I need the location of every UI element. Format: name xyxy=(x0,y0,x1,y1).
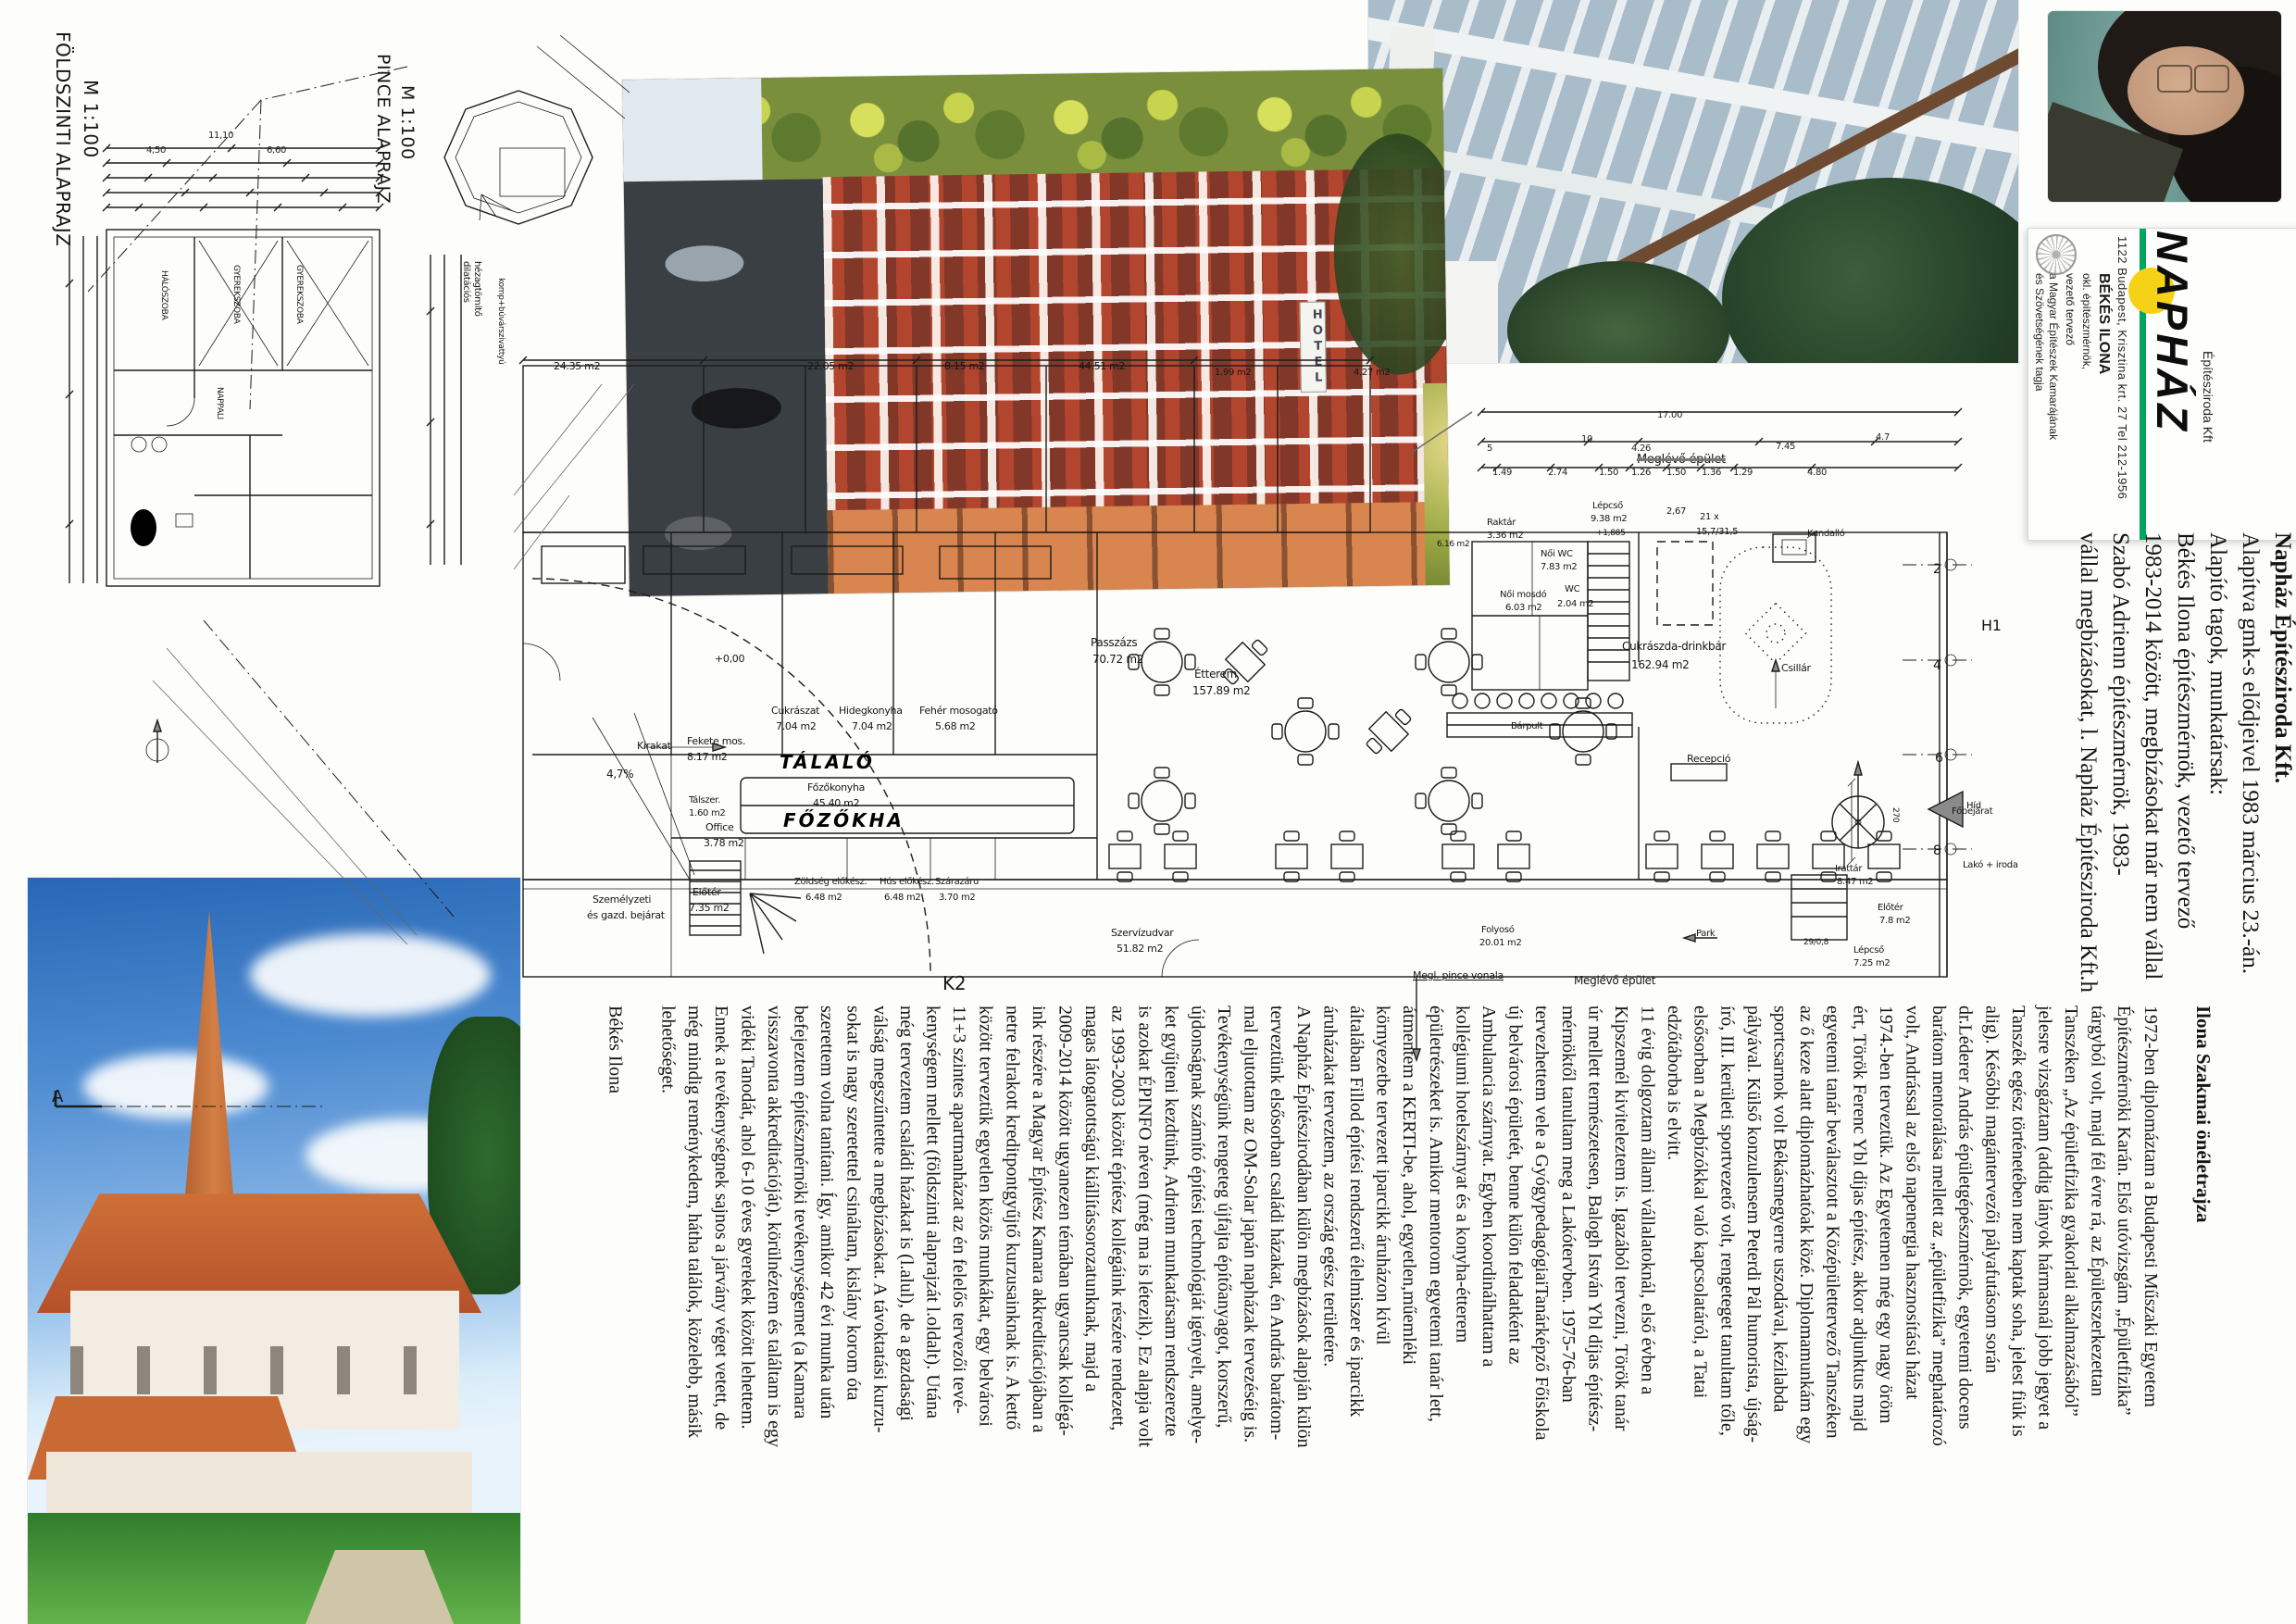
header-line: vállal megbízásokat, l. Napház Építészir… xyxy=(2072,532,2104,1009)
cv-line: még mindig reménykedem, hátha találok, k… xyxy=(681,1006,708,1624)
cv-line: még terveztem családi házakat is (l.alul… xyxy=(892,1006,919,1624)
glasses-icon xyxy=(2157,65,2192,93)
company-header-block: Napház Építésziroda Kft. Alapítva gmk-s … xyxy=(2067,532,2296,1009)
dimension-chains xyxy=(66,144,461,583)
cv-line: volt, Andrással az első napenergia haszn… xyxy=(1899,1006,1926,1624)
cv-line: szerettem volna tanítani. Így, amikor 42… xyxy=(814,1006,841,1624)
cv-line: 11 évig dolgoztam állami vállalatoknál, … xyxy=(1634,1006,1661,1624)
card-membership: a Magyar Építészek Kamarájának és Szövet… xyxy=(2032,273,2060,440)
cv-line: mérnöktől tanultam meg a Lakótervben. 19… xyxy=(1554,1006,1581,1624)
cv-line: író, III. kerületi sportvezető volt, ren… xyxy=(1714,1006,1741,1624)
card-membership-line: a Magyar Építészek Kamarájának xyxy=(2046,273,2060,440)
plants xyxy=(1722,178,2018,363)
cv-line: általában Fillod építési rendszerű élelm… xyxy=(1342,1006,1369,1624)
card-person: BÉKÉS ILONA okl. építészmérnök, vezető t… xyxy=(2062,273,2112,374)
business-card: NAPHÁZ Építésziroda Kft 1122 Budapest, K… xyxy=(2028,228,2296,541)
cv-line: jelesre vizsgáztam (addig lányok hármasn… xyxy=(2031,1006,2058,1624)
card-person-name: BÉKÉS ILONA xyxy=(2095,273,2112,374)
cv-line: tárgyból volt, majd fél évre rá, az Épül… xyxy=(2084,1006,2111,1624)
header-line: Alapítva gmk-s elődjeivel 1983 március 2… xyxy=(2234,532,2266,1009)
conservatory-photo xyxy=(1368,0,2018,363)
fireplace xyxy=(1773,531,1817,562)
cv-line: az 1993-2003 között építész kollégáink r… xyxy=(1104,1006,1131,1624)
card-person-title: okl. építészmérnök, xyxy=(2078,273,2095,374)
entrance-and-ramp xyxy=(514,384,1199,977)
cv-line: Tevékenységünk rengeteg újfajta építőany… xyxy=(1210,1006,1237,1624)
bar-counter xyxy=(1447,693,1727,781)
cv-line: elsősorban a Megbízókkal való kapcsolatá… xyxy=(1687,1006,1714,1624)
cv-line: átmentem a KERTI-be, ahol, egyetlen,műem… xyxy=(1396,1006,1423,1624)
cv-line: barátom mentorálása mellett az „épületfi… xyxy=(1925,1006,1952,1624)
skylight-dotted xyxy=(1720,547,1831,723)
card-person-title: vezető tervező xyxy=(2062,273,2078,374)
scanned-portfolio-page: HOTEL NAPHÁZ Építésziroda Kft 1122 Budap… xyxy=(0,0,2296,1624)
house-floor-plan xyxy=(106,230,380,586)
building-walls xyxy=(523,366,1947,977)
cv-line: 2009-2014 között ugyanezen témában ugyan… xyxy=(1052,1006,1079,1624)
card-address: 1122 Budapest, Krisztina krt. 27 Tel 212… xyxy=(2115,236,2129,499)
cv-line: új belvárosi épületét, benne külön felad… xyxy=(1502,1006,1529,1624)
floor-plan-drawing xyxy=(514,356,2014,1097)
cv-line: ink részére a Magyar Építész Kamara akkr… xyxy=(1025,1006,1052,1624)
cv-line xyxy=(2164,1006,2190,1624)
card-brand-subtitle: Építésziroda Kft xyxy=(2201,351,2215,443)
cv-line: újdonságnak számító építési technológiát… xyxy=(1184,1006,1211,1624)
house-wall xyxy=(46,1452,472,1517)
cv-line: is azokat ÉPINFO néven (még ma is létezi… xyxy=(1131,1006,1158,1624)
facade-grid-marks xyxy=(1848,532,1972,977)
section-mark-a xyxy=(56,1091,324,1106)
cv-line: mal eljutottam az OM-Solar japán napháza… xyxy=(1237,1006,1264,1624)
cv-line xyxy=(628,1006,655,1624)
cv-line: 1972-ben diplomáztam a Budapesti Műszaki… xyxy=(2137,1006,2164,1624)
cv-line: sportcsarnok volt Békásmegyerre uszodáva… xyxy=(1766,1006,1793,1624)
header-line: Alapító tagok, munkatársak: xyxy=(2202,532,2234,1009)
cv-line: Tanszék egész történetében nem kaptak so… xyxy=(2004,1006,2031,1624)
cv-line: kenységem mellett (földszinti alaprajzát… xyxy=(919,1006,946,1624)
cv-line: ket gyűjteni kezdtünk, Adrienn munkatárs… xyxy=(1157,1006,1184,1624)
cv-line: válság megszűntette a megbízásokat. A tá… xyxy=(867,1006,893,1624)
cv-line: netre felrakott kreditpontgyűjtő kurzusa… xyxy=(999,1006,1026,1624)
dimension-lines xyxy=(519,356,1962,1060)
cv-line: sokat is nagy szeretettel csináltam, kis… xyxy=(840,1006,867,1624)
card-brand: NAPHÁZ xyxy=(2147,231,2198,542)
cv-line: terveztünk elsősorban családi házakat, é… xyxy=(1264,1006,1291,1624)
cv-line: Ennek a tevékenységnek sajnos a járvány … xyxy=(707,1006,734,1624)
cv-line: egyetemi tanár beválasztott a Középülett… xyxy=(1819,1006,1846,1624)
cv-line: edzőtáborba is elvitt. xyxy=(1661,1006,1688,1624)
north-arrow-icon xyxy=(146,720,168,763)
cv-title: Ilona Szakmai önéletrajza xyxy=(2190,1006,2216,1624)
cv-line: 1974.-ben terveztük. Az Egyetemen még eg… xyxy=(1872,1006,1899,1624)
portrait-photo xyxy=(2048,11,2281,202)
cv-line: pályával. Külső konzulensem Peterdi Pál … xyxy=(1740,1006,1766,1624)
cv-line: alig). Későbbi magántervezői pályafutáso… xyxy=(1978,1006,2005,1624)
header-line: Szabó Adrienn építészmérnök, 1983- xyxy=(2104,532,2137,1009)
header-line: 1983-2014 között, megbízásokat már nem v… xyxy=(2137,532,2169,1009)
header-line: Napház Építésziroda Kft. xyxy=(2266,532,2296,1009)
cv-line: Kipszemél kiviteleztem is. Igazából terv… xyxy=(1607,1006,1634,1624)
cv-line: Építészmérnöki Karán. Első utóvizsgám „É… xyxy=(2111,1006,2138,1624)
cv-line: tervezhettem vele a GyógypedagógiaiTanár… xyxy=(1529,1006,1555,1624)
basement-octagon-plan xyxy=(444,35,630,224)
wc-block xyxy=(1472,542,1588,690)
cv-text-block: Ilona Szakmai önéletrajza 1972-ben diplo… xyxy=(600,1006,2216,1624)
cv-line: Tanszéken „Az épületfizika gyakorlati al… xyxy=(2057,1006,2084,1624)
cv-line: visszavonta akkreditációját), körülnézte… xyxy=(760,1006,787,1624)
cv-line: ért, Török Ferenc Ybl díjas építész, akk… xyxy=(1846,1006,1873,1624)
stairs xyxy=(690,542,1847,954)
cv-line: környezetbe tervezett iparcikk áruházon … xyxy=(1369,1006,1396,1624)
cv-line: Ambulancia szárnyat. Egyben koordinálhat… xyxy=(1475,1006,1502,1624)
cv-line: áruházakat terveztem, az ország egész te… xyxy=(1316,1006,1343,1624)
cv-line: az ő keze alatt diplomázhatóak közé. Dip… xyxy=(1793,1006,1820,1624)
cv-line: között terveztük egyetlen közös munkákat… xyxy=(972,1006,999,1624)
cv-line: épületrészeket is. Amikor mentorom egyet… xyxy=(1422,1006,1449,1624)
cv-line: befejeztem építészmérnöki tevékenységeme… xyxy=(787,1006,814,1624)
cv-line: magas látogatottságú kiállítássorozatunk… xyxy=(1078,1006,1104,1624)
cv-line: A Napház Építészirodában külön megbízáso… xyxy=(1290,1006,1316,1624)
plants xyxy=(1507,261,1729,363)
cv-line: vidéki Tanodát, ahol 6-10 éves gyerekek … xyxy=(734,1006,761,1624)
card-membership-line: és Szövetségének tagja xyxy=(2032,273,2046,440)
cv-line: kollégiumi hotelszárnyat és a konyha-étt… xyxy=(1449,1006,1476,1624)
cv-line: úr mellett természetesen, Balogh István … xyxy=(1581,1006,1608,1624)
header-line: Békés Ilona építészmérnök, vezető tervez… xyxy=(2169,532,2202,1009)
glazing-frame xyxy=(1368,12,2018,166)
glasses-icon xyxy=(2194,65,2229,93)
cv-line: dr.Léderer András épületgépészmérnök, eg… xyxy=(1952,1006,1978,1624)
site-boundary-lines xyxy=(88,67,454,944)
stamp-icon xyxy=(2036,234,2077,275)
dining-tables xyxy=(1109,629,1900,881)
cv-line: 11+3 szintes apartmanházat az én felelős… xyxy=(946,1006,973,1624)
cv-line: lehetőséget. xyxy=(655,1006,681,1624)
